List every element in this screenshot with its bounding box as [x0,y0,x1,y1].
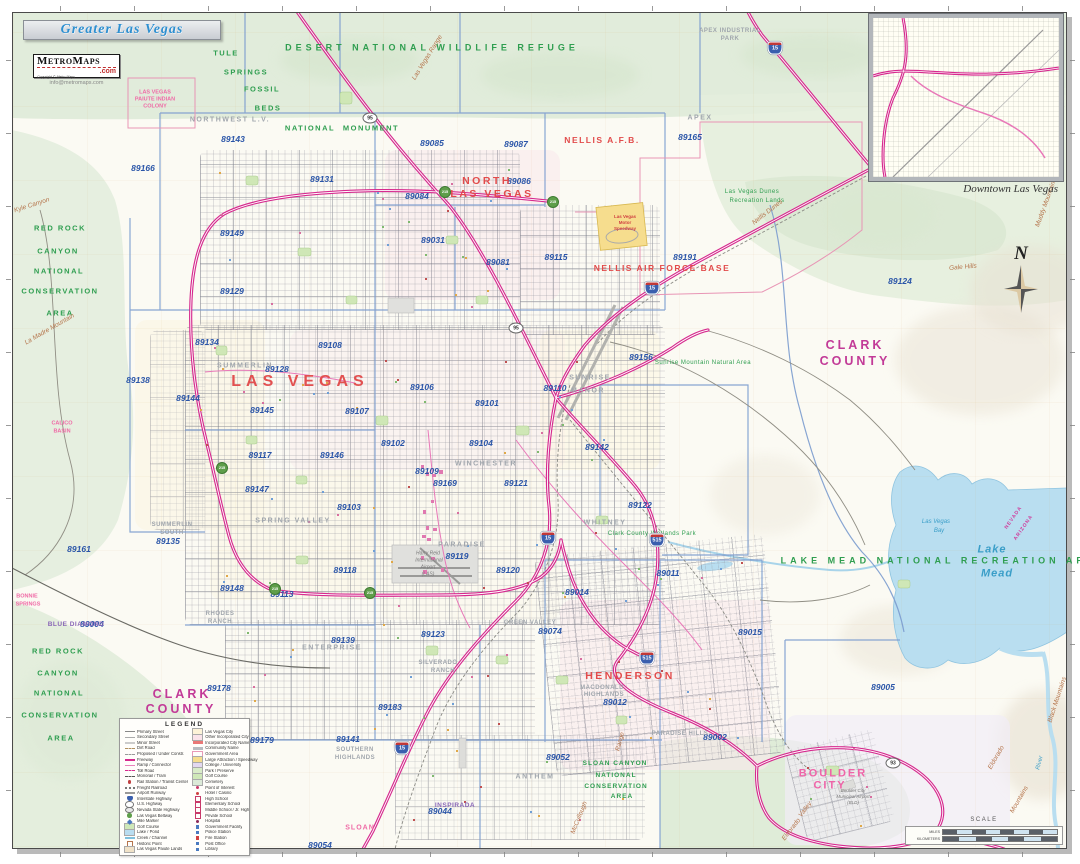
scale-segment [972,830,986,834]
scale-segment [957,830,971,834]
scale-miles-label: MILES [910,830,942,834]
legend-item-label: Incorporated City Name [205,741,249,745]
legend-item-label: Police Station [205,830,231,834]
legend-item-label: Park / Preserve [205,769,234,773]
legend-item-label: Elementary School [205,802,240,806]
highway-shield-515: 515 [650,534,665,547]
scale-miles-bar [942,829,1058,835]
map-title: Greater Las Vegas [61,22,184,38]
legend-item-label: Secondary Street [137,735,169,739]
scale-segment [959,837,975,841]
legend-left-column: Primary StreetSecondary StreetMinor Stre… [124,729,188,852]
highway-shield-95: 95 [509,323,524,334]
logo-email: info@metromaps.com [33,80,120,86]
legend-item-label: Fire Station [205,836,226,840]
scale-segment [992,837,1008,841]
legend-item-label: Primary Street [137,730,164,734]
legend-item-label: Freight Railroad [137,786,167,790]
legend-item-label: Nevada State Highway [137,808,180,812]
scale-segment [1043,830,1057,834]
legend-item-label: Golf Course [137,825,159,829]
legend-item-label: Government Facility [205,825,242,829]
legend-item-label: Lake / Pond [137,830,159,834]
scale-segment [1008,837,1024,841]
highway-shield-93: 93 [886,758,901,769]
legend-item-label: Point of Interest [205,786,234,790]
legend-item-label: U.S. Highway [137,802,162,806]
legend-item-label: Cemetery [205,780,223,784]
legend-item-label: Las Vegas City [205,730,233,734]
highway-shield-515: 515 [640,652,655,665]
legend-item-label: Monorail / Tram [137,774,166,778]
legend-item-label: Airport Runway [137,791,166,795]
legend-item-other-incorporated-city: Other Incorporated City [192,735,257,741]
logo-brand: MetroMaps [37,56,116,68]
scale-segment [1041,837,1057,841]
highway-shield-15: 15 [768,42,783,55]
scale-segment [943,830,957,834]
legend-item-label: Toll Road [137,769,154,773]
highway-shield-15: 15 [395,742,410,755]
legend-item-label: College / University [205,763,241,767]
highway-shield-15: 15 [541,532,556,545]
legend-item-label: Ramp / Connector [137,763,171,767]
legend-item-label: Hotel / Casino [205,791,231,795]
legend-item-las-vegas-paiute-lands: Las Vegas Paiute Lands [124,846,188,852]
legend-item-label: Las Vegas Paiute Lands [137,847,182,851]
legend-item-library: Library [192,846,257,852]
legend-item-label: High School [205,797,228,801]
inset-caption: Downtown Las Vegas [878,183,1058,195]
legend-item-label: Creek / Channel [137,836,167,840]
inset-roads [873,18,1059,177]
inset-map-downtown [869,14,1063,181]
legend-item-label: Proposed / Under Constr. [137,752,184,756]
legend-item-nevada-state-highway: Nevada State Highway [124,807,188,813]
legend-item-label: Golf Course [205,774,227,778]
scale-segment [986,830,1000,834]
legend-item-label: Middle School / Jr. High [205,808,249,812]
scale-segment [1000,830,1014,834]
north-arrow: N [997,244,1045,320]
highway-shield-215: 215 [439,186,451,198]
scale-km-bar [942,836,1058,842]
map-title-box: Greater Las Vegas [23,20,221,40]
legend-title: LEGEND [124,721,245,728]
scale-segment [1014,830,1028,834]
legend-item-label: Historic Point [137,842,162,846]
scale-segment [1024,837,1040,841]
legend-item-label: Community Name [205,746,239,750]
compass-star [997,263,1045,315]
legend-item-label: Post Office [205,842,225,846]
legend-item-label: Las Vegas Beltway [137,814,172,818]
scale-heading: SCALE [905,817,1063,823]
legend-right-column: Las Vegas CityOther Incorporated CityInc… [192,729,257,852]
highway-shield-15: 15 [645,282,660,295]
highway-shield-95: 95 [363,113,378,124]
map-page: 8912489124891668914389131890858908789165… [0,0,1080,864]
legend-item-label: Minor Street [137,741,160,745]
legend-item-label: Government Area [205,752,238,756]
highway-shield-215: 215 [547,196,559,208]
scale-segment [976,837,992,841]
legend-item-label: Interstate Highway [137,797,172,801]
legend-item-label: Private School [205,814,232,818]
legend-item-label: Library [205,847,218,851]
scale-segment [943,837,959,841]
highway-shield-215: 215 [269,583,281,595]
metromaps-logo: MetroMaps .com Copyright © Metro Maps [33,54,120,78]
highway-shield-215: 215 [364,587,376,599]
legend-item-label: Other Incorporated City [205,735,249,739]
legend: LEGEND Primary StreetSecondary StreetMin… [119,718,250,856]
scale-segment [1029,830,1043,834]
north-letter: N [997,244,1045,263]
scale-bar: MILES KILOMETERS [905,826,1063,845]
legend-item-label: Hospital [205,819,220,823]
legend-item-label: Mile Marker [137,819,159,823]
scale-km-label: KILOMETERS [910,837,942,841]
logo-copyright: Copyright © Metro Maps [37,76,116,80]
legend-item-label: Large Attraction / Speedway [205,758,257,762]
highway-shield-215: 215 [216,462,228,474]
legend-item-label: Dirt Road [137,746,155,750]
legend-item-label: Freeway [137,758,153,762]
legend-item-label: Rail Station / Transit Center [137,780,188,784]
